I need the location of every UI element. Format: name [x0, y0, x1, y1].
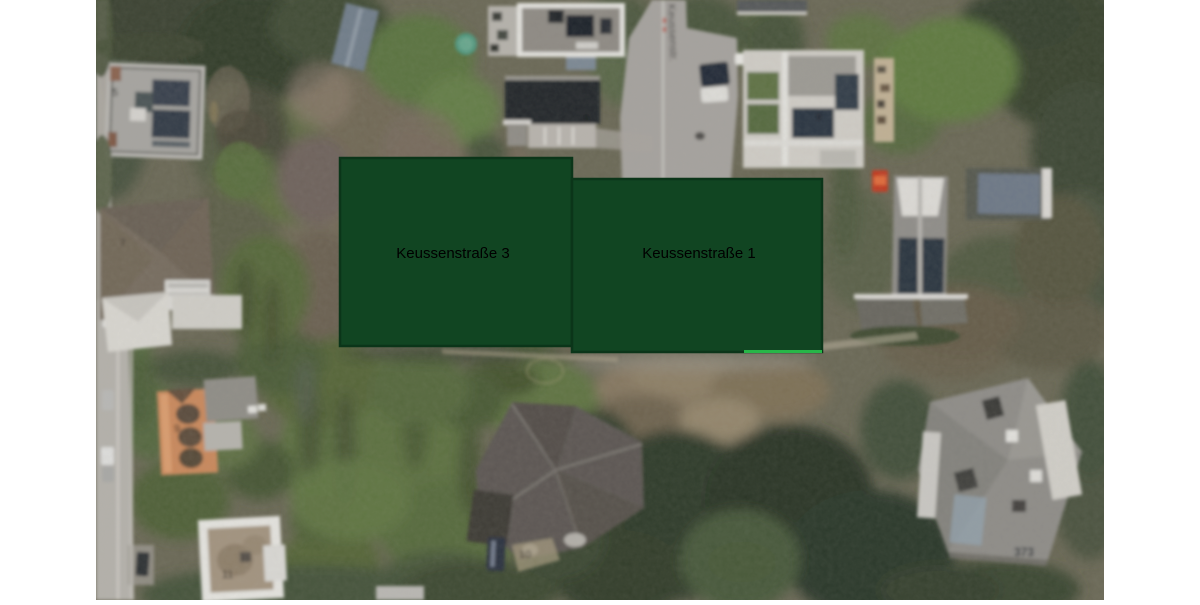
svg-text:Keussenstraße 1: Keussenstraße 1	[642, 245, 755, 262]
svg-text:Keussenstraße 3: Keussenstraße 3	[396, 245, 509, 262]
